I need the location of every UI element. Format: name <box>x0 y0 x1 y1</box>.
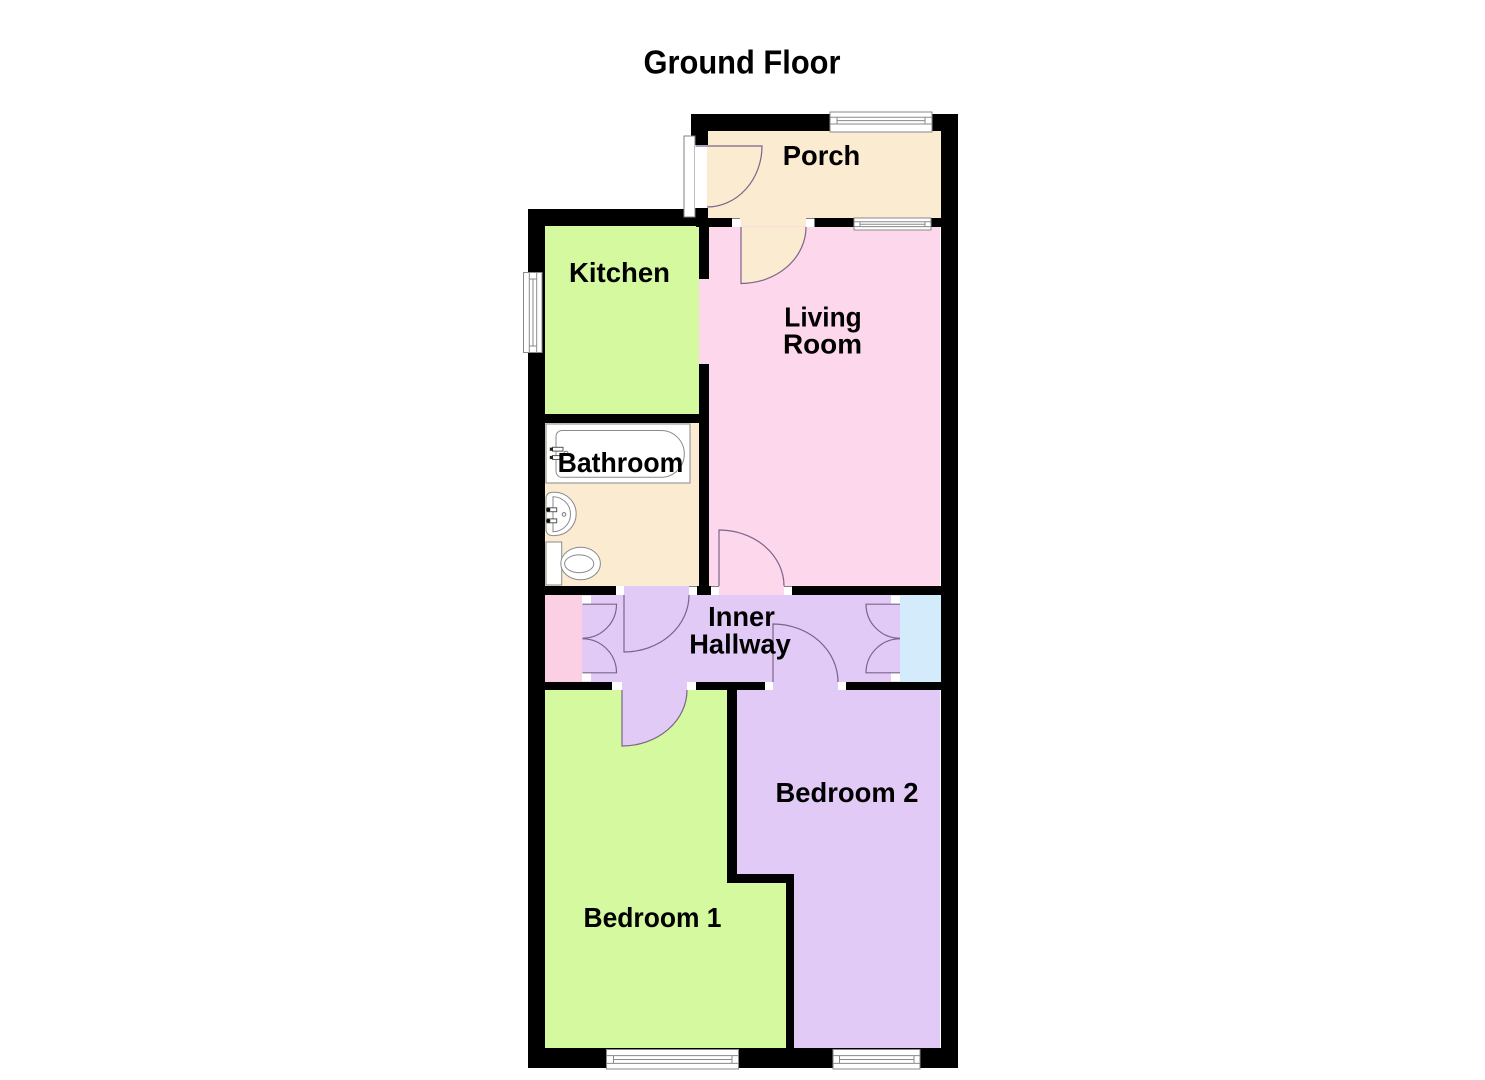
svg-text:Ground Floor: Ground Floor <box>644 44 841 81</box>
svg-text:Hallway: Hallway <box>689 629 791 660</box>
svg-text:Kitchen: Kitchen <box>569 257 670 288</box>
svg-text:Bedroom 2: Bedroom 2 <box>776 777 919 808</box>
svg-text:Bedroom 1: Bedroom 1 <box>584 902 722 933</box>
svg-text:Porch: Porch <box>783 140 861 171</box>
svg-text:Bathroom: Bathroom <box>558 447 684 478</box>
svg-text:Inner: Inner <box>708 601 775 632</box>
svg-text:Room: Room <box>783 329 862 360</box>
